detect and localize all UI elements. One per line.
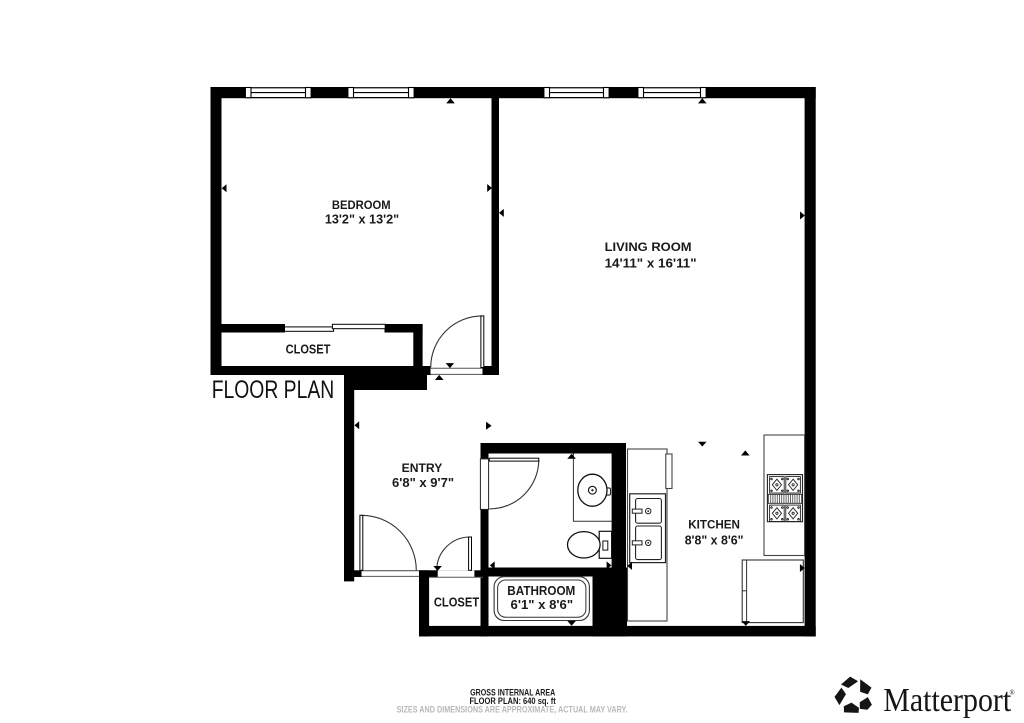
svg-text:KITCHEN: KITCHEN	[688, 518, 740, 532]
svg-text:CLOSET: CLOSET	[286, 342, 331, 357]
svg-text:Matterport: Matterport	[883, 682, 1011, 719]
svg-text:SIZES AND DIMENSIONS ARE APPRO: SIZES AND DIMENSIONS ARE APPROXIMATE, AC…	[397, 704, 628, 714]
svg-text:8'8" x 8'6": 8'8" x 8'6"	[685, 533, 744, 548]
svg-text:®: ®	[1010, 689, 1016, 697]
svg-text:14'11" x 16'11": 14'11" x 16'11"	[605, 256, 697, 271]
svg-text:FLOOR PLAN: FLOOR PLAN	[212, 376, 335, 404]
svg-text:6'1" x 8'6": 6'1" x 8'6"	[511, 597, 574, 612]
svg-text:BEDROOM: BEDROOM	[332, 198, 391, 212]
svg-text:13'2" x 13'2": 13'2" x 13'2"	[325, 212, 399, 227]
svg-text:CLOSET: CLOSET	[434, 595, 479, 610]
svg-text:LIVING ROOM: LIVING ROOM	[605, 240, 692, 254]
svg-text:ENTRY: ENTRY	[402, 461, 443, 475]
svg-text:BATHROOM: BATHROOM	[507, 583, 575, 598]
svg-text:6'8" x 9'7": 6'8" x 9'7"	[392, 475, 454, 490]
